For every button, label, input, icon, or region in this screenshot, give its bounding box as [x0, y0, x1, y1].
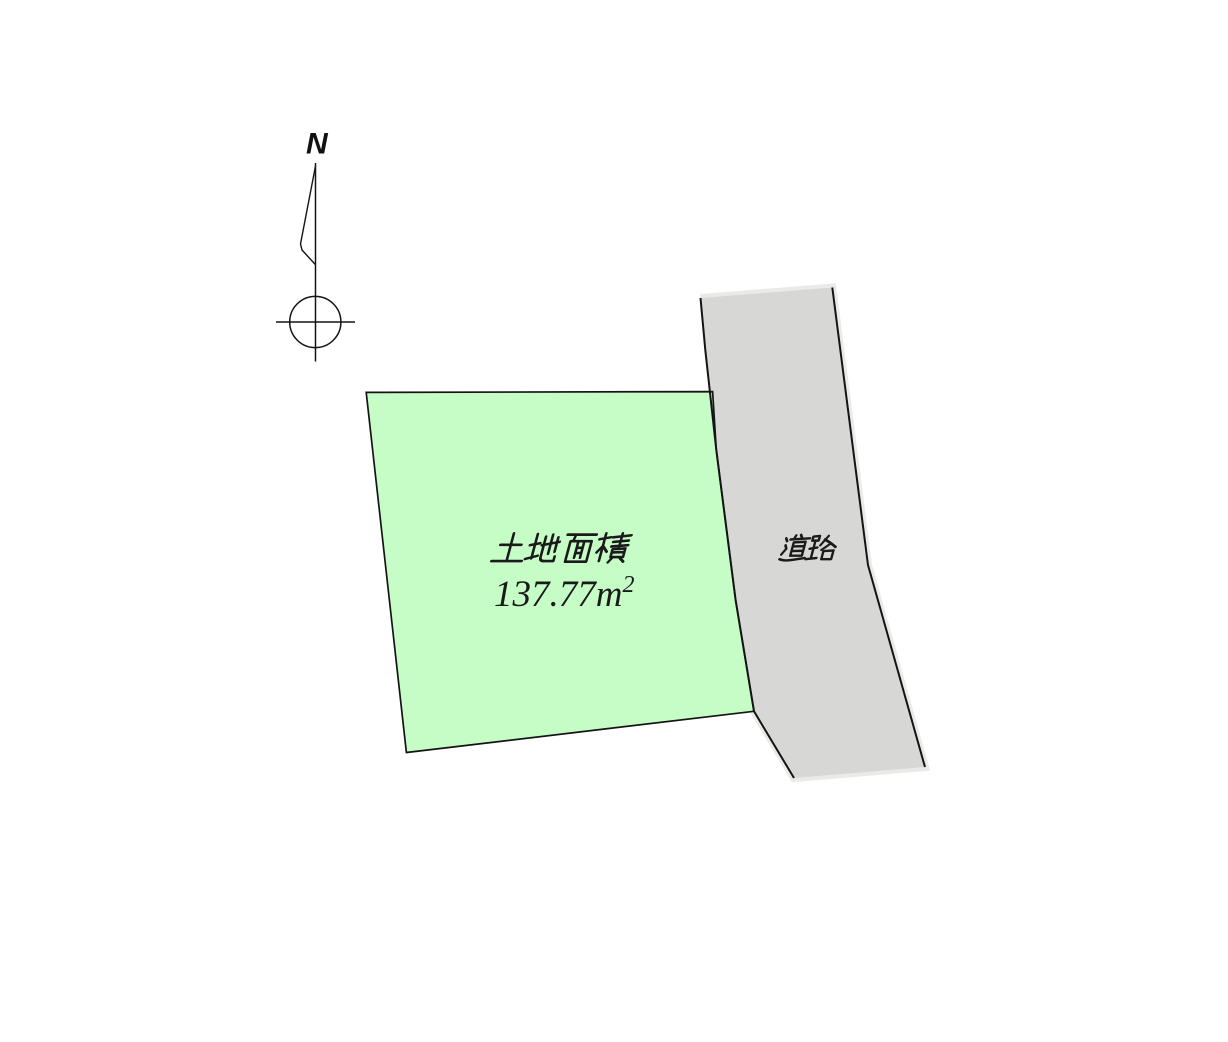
svg-text:N: N: [306, 128, 329, 161]
svg-text:137.77m2: 137.77m2: [494, 572, 634, 615]
